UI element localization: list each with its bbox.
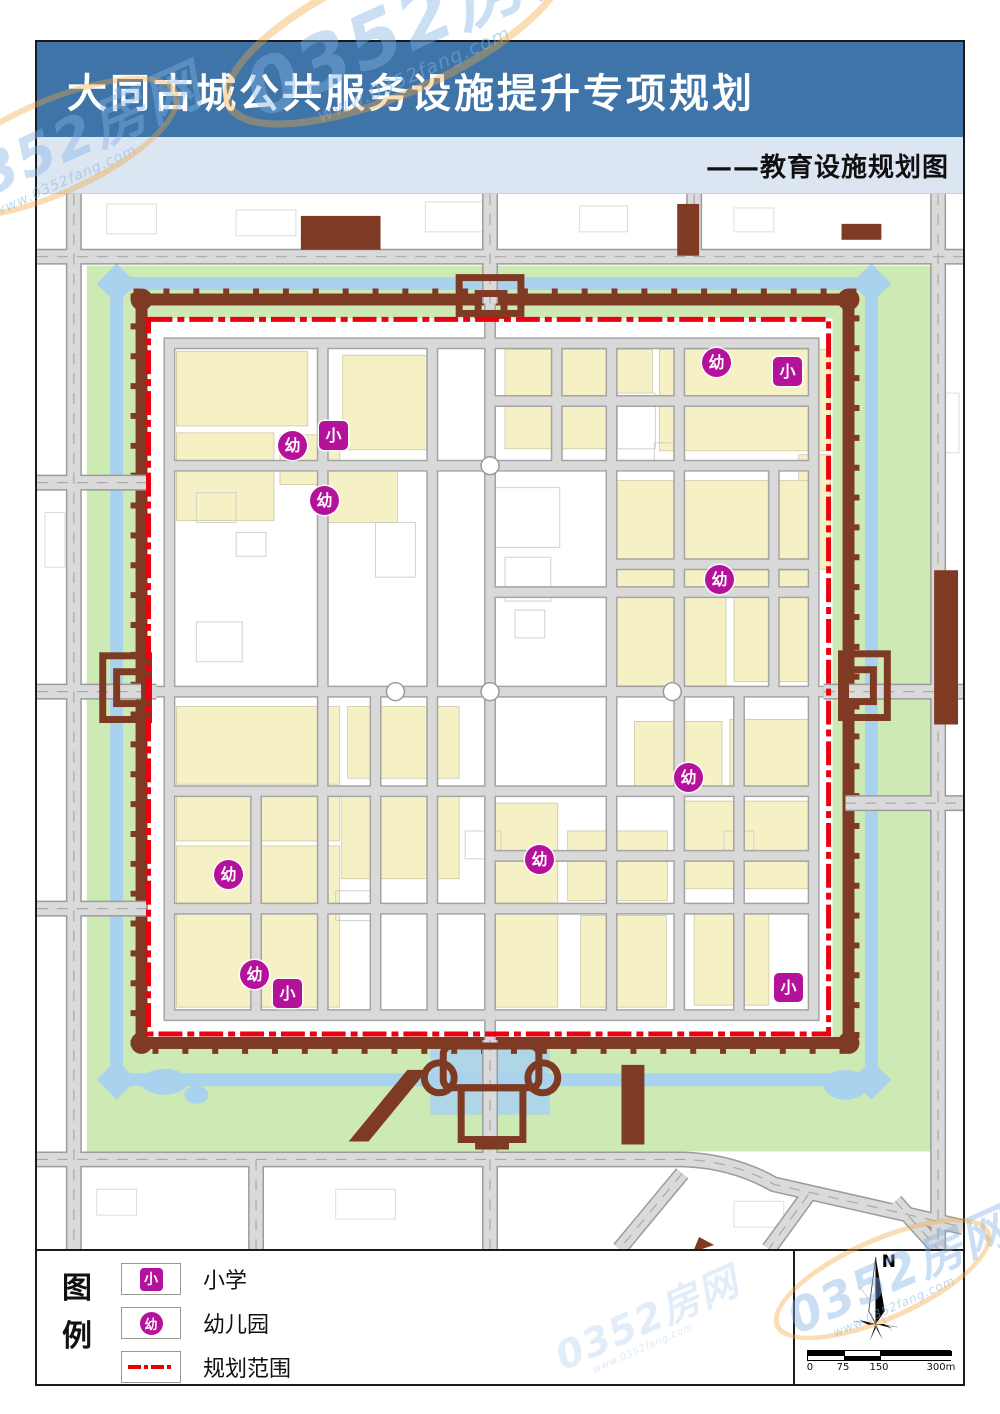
header-band: 大同古城公共服务设施提升专项规划 <box>37 42 963 137</box>
facility-markers-layer: 幼小幼小幼幼幼幼幼幼小小 <box>37 194 963 1249</box>
compass-scale-panel: N 0 75 150 300m <box>795 1251 963 1384</box>
marker-primary_school[interactable]: 小 <box>774 973 803 1002</box>
dash-dot-line-icon <box>128 1363 174 1371</box>
marker-primary_school[interactable]: 小 <box>319 421 348 450</box>
subtitle-band: ——教育设施规划图 <box>37 137 963 194</box>
marker-kindergarten[interactable]: 幼 <box>310 486 339 515</box>
primary-school-icon: 小 <box>140 1268 163 1291</box>
legend-label-kindergarten: 幼儿园 <box>203 1307 269 1339</box>
map-subtitle: ——教育设施规划图 <box>706 147 963 184</box>
legend-strip: 图 例 小 小学 幼 幼儿园 <box>37 1251 963 1384</box>
map-area: 幼小幼小幼幼幼幼幼幼小小 <box>37 194 963 1251</box>
legend-item-planning-boundary: 规划范围 <box>121 1351 291 1383</box>
kindergarten-icon: 幼 <box>140 1312 163 1335</box>
kindergarten-symbol-box: 幼 <box>121 1307 181 1339</box>
scale-150: 150 <box>869 1362 888 1373</box>
scale-75: 75 <box>837 1362 850 1373</box>
marker-kindergarten[interactable]: 幼 <box>278 431 307 460</box>
legend-title: 图 例 <box>59 1265 95 1361</box>
marker-kindergarten[interactable]: 幼 <box>702 348 731 377</box>
legend-item-primary-school: 小 小学 <box>121 1263 247 1295</box>
primary-school-symbol-box: 小 <box>121 1263 181 1295</box>
marker-kindergarten[interactable]: 幼 <box>214 860 243 889</box>
legend-item-kindergarten: 幼 幼儿园 <box>121 1307 269 1339</box>
page-title: 大同古城公共服务设施提升专项规划 <box>37 61 755 119</box>
marker-kindergarten[interactable]: 幼 <box>674 763 703 792</box>
legend-panel: 图 例 小 小学 幼 幼儿园 <box>37 1251 795 1384</box>
legend-label-planning-boundary: 规划范围 <box>203 1351 291 1383</box>
scale-300: 300m <box>926 1362 955 1373</box>
north-label: N <box>882 1252 896 1272</box>
legend-label-primary-school: 小学 <box>203 1263 247 1295</box>
marker-primary_school[interactable]: 小 <box>273 979 302 1008</box>
planning-boundary-symbol-box <box>121 1351 181 1383</box>
scale-0: 0 <box>807 1362 813 1373</box>
scale-bar-labels: 0 75 150 300m <box>807 1361 951 1375</box>
page: 大同古城公共服务设施提升专项规划 ——教育设施规划图 <box>0 0 1000 1414</box>
north-arrow: N <box>846 1251 910 1347</box>
marker-kindergarten[interactable]: 幼 <box>240 960 269 989</box>
map-sheet-frame: 大同古城公共服务设施提升专项规划 ——教育设施规划图 <box>35 40 965 1386</box>
marker-kindergarten[interactable]: 幼 <box>705 565 734 594</box>
marker-primary_school[interactable]: 小 <box>773 357 802 386</box>
marker-kindergarten[interactable]: 幼 <box>525 845 554 874</box>
scale-bar-graphic <box>807 1350 951 1361</box>
scale-bar: 0 75 150 300m <box>807 1350 951 1376</box>
